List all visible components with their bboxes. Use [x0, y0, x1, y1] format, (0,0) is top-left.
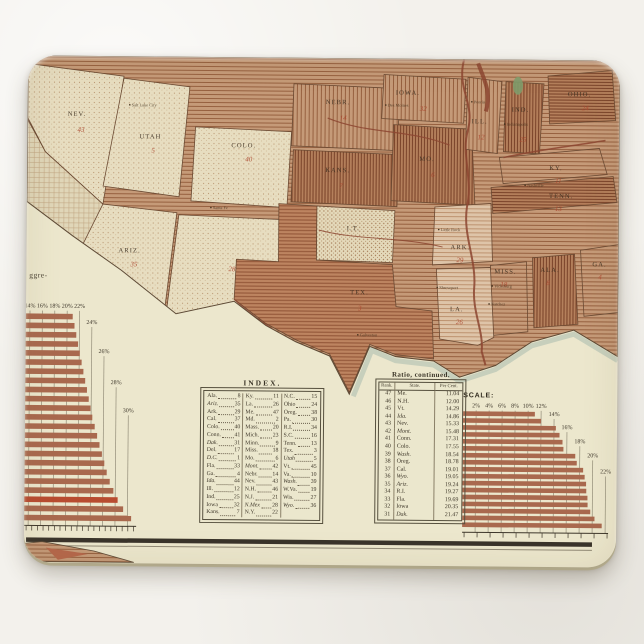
ratio-cell: 21.47 — [434, 512, 461, 520]
bar — [463, 467, 584, 473]
axis-tick-label: 4% — [485, 403, 493, 409]
bar — [462, 502, 587, 508]
gridline — [115, 387, 116, 526]
bar — [24, 332, 77, 338]
axis-tick-label: 26% — [99, 349, 110, 355]
bar — [463, 418, 541, 423]
bar — [463, 453, 576, 459]
ratio-cell: 45 — [379, 406, 395, 414]
index-entry: N.Y.22 — [245, 510, 278, 518]
mousepad: NEV.43UTAH5Salt Lake CityCOLO.40ARIZ.352… — [24, 55, 620, 567]
city-dot — [524, 184, 526, 186]
city-label: Nashville — [527, 183, 544, 188]
city-label: Vicksburg — [494, 284, 512, 289]
bar — [24, 496, 118, 502]
city-dot — [210, 207, 212, 209]
state-shape-la — [436, 267, 495, 346]
state-rank-number: 32 — [419, 105, 428, 113]
state-rank-number: 40 — [245, 155, 253, 163]
index-table-title: INDEX. — [203, 378, 321, 388]
bar — [463, 460, 577, 466]
bar — [24, 341, 78, 347]
ratio-cell: 31 — [378, 511, 394, 519]
ratio-header-percent: Per Cent. — [435, 383, 462, 391]
bar — [463, 439, 563, 444]
axis-tick-label: 14% — [549, 412, 560, 418]
bar — [24, 460, 105, 466]
city-dot — [471, 101, 473, 103]
printed-map-sheet: NEV.43UTAH5Salt Lake CityCOLO.40ARIZ.352… — [24, 55, 620, 567]
bar — [462, 481, 586, 487]
index-entry: Wyo.36 — [283, 502, 316, 510]
state-rank-number: 3 — [357, 304, 362, 312]
ratio-cell: 32 — [378, 504, 394, 512]
ratio-cell: 44 — [379, 413, 395, 421]
ratio-cell: 41 — [379, 436, 395, 444]
city-label: Des Moines — [388, 103, 409, 108]
state-rank-number: 4 — [598, 273, 602, 281]
axis-tick-label: 20% — [62, 304, 73, 310]
state-label: GA. — [592, 261, 606, 268]
city-dot — [504, 123, 506, 125]
fragment-texture — [24, 541, 134, 562]
bar — [24, 405, 91, 411]
index-column: Ky.11La.26Me.47Md.2Mass.20Mich.23Minn.9M… — [243, 393, 282, 517]
axis-tick-label: 16% — [37, 304, 48, 310]
bar — [24, 368, 84, 374]
bar — [24, 377, 85, 383]
state-shape-iowa — [382, 75, 466, 124]
state-shape-it — [316, 206, 394, 263]
bar — [24, 387, 87, 393]
bar — [462, 495, 587, 501]
state-label: COLO. — [231, 142, 256, 149]
state-shape-mo — [391, 125, 476, 206]
state-label: MO. — [419, 156, 434, 163]
state-label: IND. — [512, 107, 530, 114]
bar — [24, 432, 97, 438]
bar — [463, 446, 564, 451]
axis-tick-label: 2% — [472, 403, 480, 409]
gridline — [592, 460, 593, 533]
cut-caption-fragment: ggre- — [29, 270, 47, 279]
state-rank-number: 5 — [151, 147, 155, 155]
city-dot — [491, 285, 493, 287]
city-label: Shreveport — [439, 285, 459, 290]
state-rank-number: 12 — [477, 133, 485, 141]
axis-tick-label: 18% — [574, 439, 585, 445]
ratio-table-title: Ratio, continued. — [378, 370, 463, 379]
bar — [24, 441, 100, 447]
city-label: Peoria — [474, 99, 485, 104]
state-label: ARK. — [451, 244, 471, 251]
state-rank-number: 25 — [519, 136, 527, 144]
state-label: MISS. — [494, 269, 516, 276]
state-rank-number: 29 — [456, 256, 464, 264]
bar — [462, 488, 586, 494]
axis-tick-label: 14% — [25, 303, 36, 309]
ratio-cell: 35 — [378, 481, 394, 489]
bar — [462, 522, 602, 528]
state-rank-number: 13 — [555, 205, 563, 213]
state-rank-number: 35 — [129, 260, 138, 268]
ratio-cell: 39 — [379, 451, 395, 459]
city-dot — [438, 229, 440, 231]
axis-baseline — [462, 532, 608, 533]
scale-bar-chart: SCALE:2%4%6%8%10%12%14%16%18%20%22% — [462, 392, 612, 538]
ratio-cell: 43 — [379, 421, 395, 429]
ratio-header-rank: Rank. — [379, 383, 395, 391]
city-dot — [357, 334, 359, 336]
state-shape-ala — [532, 254, 579, 328]
city-dot — [129, 104, 131, 106]
state-label: I.T. — [347, 225, 360, 232]
state-label: KANS. — [325, 167, 350, 174]
city-label: Santa Fe — [213, 205, 228, 210]
bar — [24, 313, 73, 319]
state-rank-number: 11 — [555, 177, 562, 185]
chart-title: SCALE: — [463, 392, 494, 399]
state-rank-number: 14 — [340, 114, 348, 122]
state-rank-number: 43 — [78, 126, 86, 134]
ratio-table: Ratio, continued. Rank. State. Per Cent.… — [377, 370, 463, 520]
state-label: LA. — [450, 306, 464, 313]
bar — [24, 487, 114, 493]
state-label: IOWA. — [396, 90, 420, 97]
axis-tick-label: 16% — [561, 425, 572, 431]
axis-tick-label: 20% — [587, 453, 598, 459]
state-label: KY. — [549, 165, 563, 172]
state-label: NEV. — [68, 111, 87, 118]
state-rank-number: 26 — [456, 318, 464, 326]
city-label: Little Rock — [441, 227, 461, 232]
bar — [463, 432, 560, 437]
corner-map-fragment — [24, 541, 134, 562]
axis-tick-label: 10% — [523, 404, 534, 410]
state-label: NEBR. — [326, 99, 351, 106]
state-shape-ill — [465, 77, 502, 153]
ratio-cell: 36 — [379, 474, 395, 482]
state-label: TEX. — [350, 289, 369, 296]
state-rank-number: 7 — [339, 182, 343, 190]
state-shape-kans — [291, 150, 399, 207]
state-label: ILL. — [472, 118, 488, 125]
state-rank-number: 28 — [228, 265, 236, 273]
bottom-rule — [26, 537, 592, 550]
state-label: ARIZ. — [118, 247, 140, 254]
axis-tick-label: 30% — [123, 408, 134, 414]
state-label: TENN. — [549, 193, 574, 200]
bar — [24, 350, 80, 356]
left-bar-chart: 14%16%18%20%22%24%26%28%30% — [24, 303, 138, 531]
ratio-cell: 37 — [379, 466, 395, 474]
us-map: NEV.43UTAH5Salt Lake CityCOLO.40ARIZ.352… — [25, 55, 620, 398]
axis-tick-label: 22% — [74, 304, 85, 310]
bar — [462, 509, 590, 515]
city-dot — [488, 303, 490, 305]
state-rank-number: 6 — [431, 171, 435, 179]
city-label: Salt Lake City — [132, 102, 158, 107]
state-shape-colo — [191, 127, 292, 208]
ratio-cell: Dak. — [394, 512, 434, 520]
bar — [24, 451, 102, 457]
ratio-cell: 40 — [379, 444, 395, 452]
city-dot — [436, 287, 438, 289]
ratio-cell: 47 — [379, 391, 395, 399]
bar — [24, 515, 131, 522]
axis-tick-label: 28% — [111, 380, 122, 386]
bar — [24, 323, 75, 329]
index-entry: Kans.7 — [206, 509, 239, 517]
state-label: UTAH — [139, 133, 161, 140]
ratio-cell: 33 — [378, 496, 394, 504]
bar — [24, 359, 82, 365]
bar — [24, 469, 107, 475]
axis-tick-label: 12% — [536, 404, 547, 410]
bar — [463, 411, 535, 416]
state-label: ALA. — [540, 267, 559, 274]
axis-baseline — [24, 525, 136, 526]
ratio-cell: 46 — [379, 398, 395, 406]
city-dot — [385, 104, 387, 106]
ratio-cell: 38 — [379, 459, 395, 467]
thick-rule — [26, 537, 592, 546]
axis-tick-label: 24% — [86, 320, 97, 326]
axis-tick-label: 8% — [511, 404, 519, 410]
index-column: Ala.8Ariz.35Ark.29Cal.37Colo.40Conn.41Da… — [204, 393, 243, 517]
bar — [24, 396, 89, 402]
city-label: Indianapolis — [507, 122, 529, 127]
state-rank-number: 8 — [546, 279, 550, 287]
index-column: N.C.15Ohio24Oreg.38Pa.30R.I.34S.C.16Tenn… — [281, 394, 319, 518]
city-label: Galveston — [360, 332, 378, 337]
axis-tick-label: 6% — [498, 404, 506, 410]
bar — [24, 478, 110, 484]
bar — [24, 414, 93, 420]
state-rank-number: 24 — [582, 104, 590, 112]
city-label: Natchez — [491, 301, 505, 306]
bar — [24, 423, 95, 429]
bar — [463, 425, 556, 430]
gridline — [127, 415, 128, 526]
bar — [24, 506, 123, 512]
axis-tick-label: 22% — [600, 469, 611, 475]
product-photo: { "photo": {"background": "#f3f1ec"}, "p… — [0, 0, 644, 644]
index-table: INDEX. Ala.8Ariz.35Ark.29Cal.37Colo.40Co… — [202, 378, 321, 521]
bar — [462, 515, 594, 521]
axis-tick-label: 18% — [49, 304, 60, 310]
state-label: OHIO. — [568, 91, 591, 98]
ratio-cell: 42 — [379, 428, 395, 436]
ratio-cell: 34 — [378, 489, 394, 497]
